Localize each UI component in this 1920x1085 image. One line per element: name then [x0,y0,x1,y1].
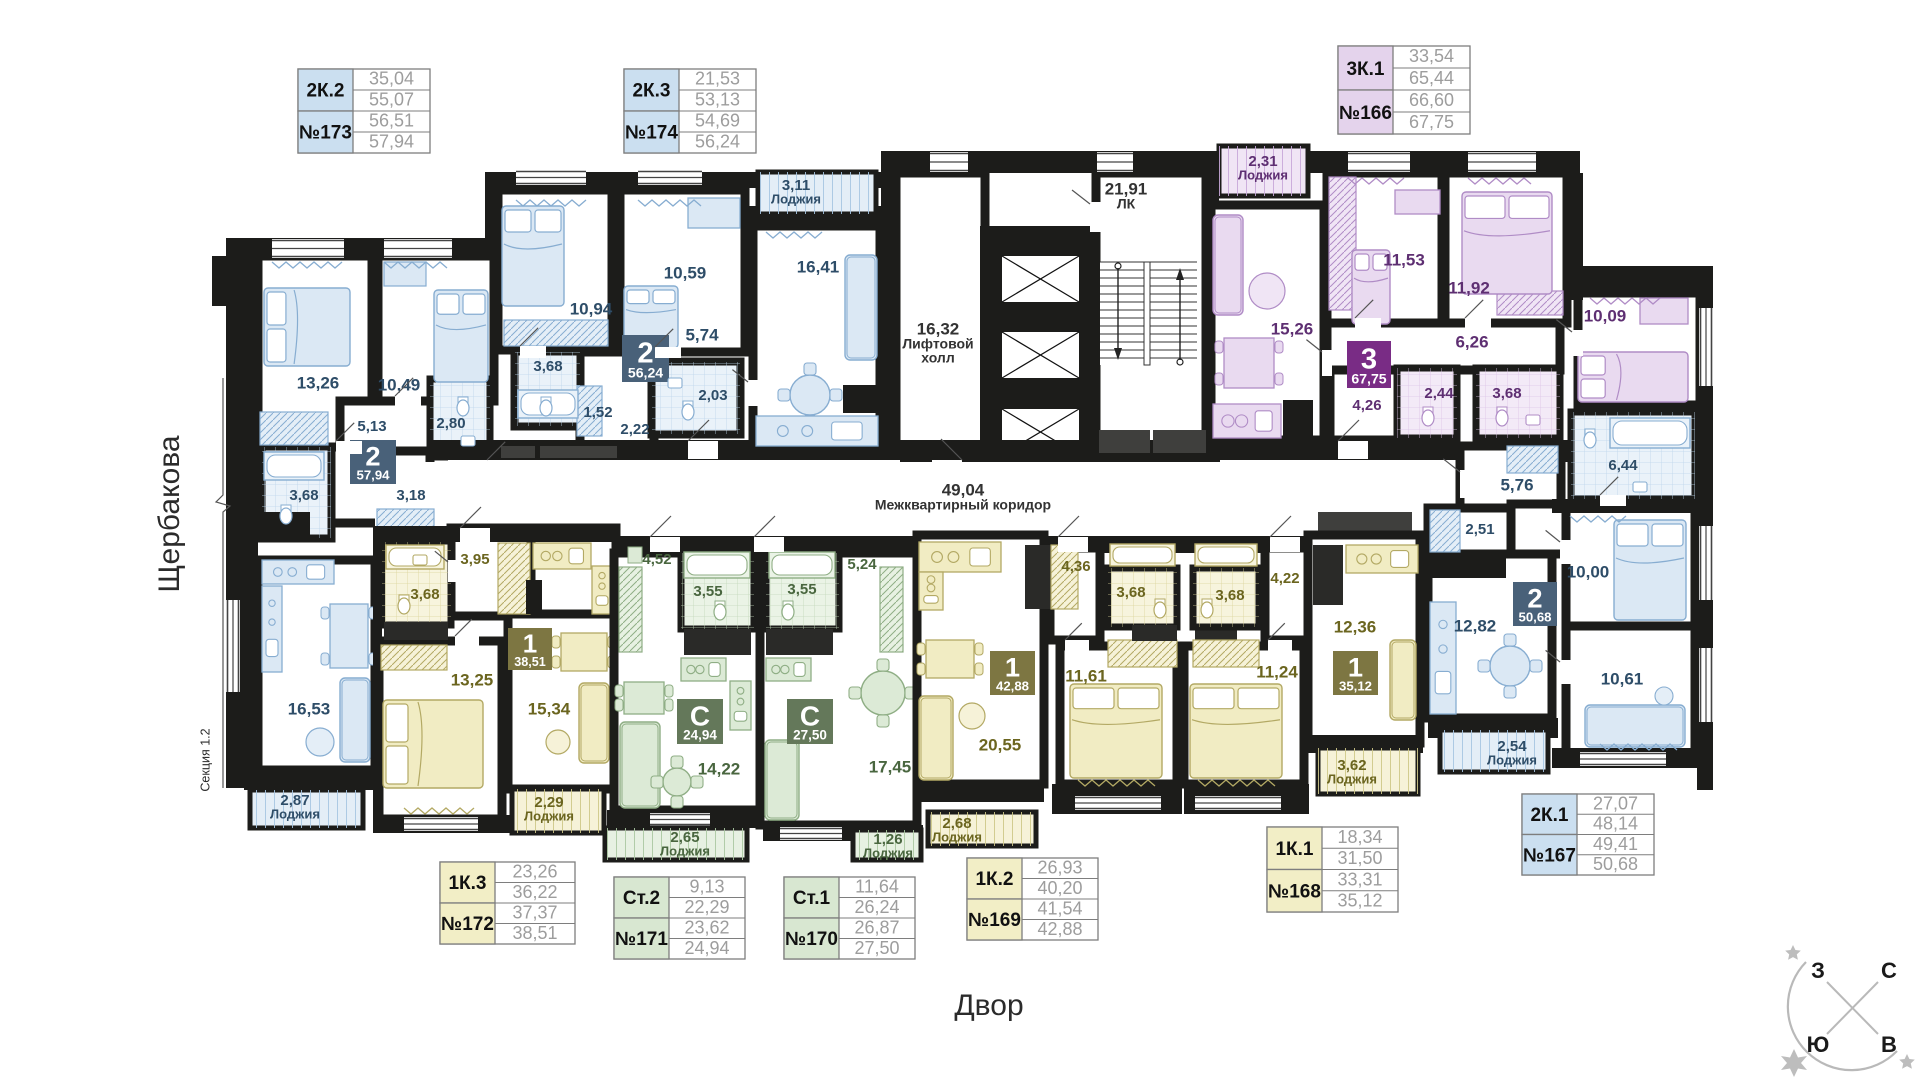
svg-text:Лоджия: Лоджия [660,843,710,858]
svg-text:Лоджия: Лоджия [1327,771,1377,786]
svg-text:3,55: 3,55 [693,583,722,600]
svg-text:40,20: 40,20 [1037,878,1082,898]
svg-text:В: В [1881,1032,1897,1057]
svg-text:38,51: 38,51 [514,655,546,669]
svg-text:48,14: 48,14 [1593,814,1638,834]
svg-text:35,04: 35,04 [369,69,414,89]
svg-text:2,44: 2,44 [1424,385,1454,402]
svg-text:17,45: 17,45 [869,757,912,776]
svg-text:Ст.2: Ст.2 [623,888,660,909]
svg-text:№169: №169 [968,910,1021,931]
svg-text:50,68: 50,68 [1593,854,1638,874]
svg-text:6,26: 6,26 [1455,332,1488,351]
svg-text:3,68: 3,68 [1116,584,1145,601]
svg-text:57,94: 57,94 [356,468,390,483]
svg-text:15,26: 15,26 [1271,319,1314,338]
svg-text:Лоджия: Лоджия [1238,167,1288,182]
svg-text:36,22: 36,22 [512,882,557,902]
svg-text:4,52: 4,52 [642,551,671,568]
svg-text:3,55: 3,55 [787,581,816,598]
svg-text:Ст.1: Ст.1 [793,888,831,909]
svg-text:№172: №172 [441,914,494,935]
svg-text:20,55: 20,55 [979,735,1022,754]
svg-text:12,36: 12,36 [1334,617,1377,636]
svg-text:42,88: 42,88 [1037,919,1082,939]
svg-text:22,29: 22,29 [684,897,729,917]
svg-text:24,94: 24,94 [684,938,729,958]
svg-text:3,68: 3,68 [410,586,439,603]
svg-text:23,62: 23,62 [684,917,729,937]
svg-text:15,34: 15,34 [528,699,571,718]
svg-text:З: З [1811,958,1825,983]
svg-text:2К.3: 2К.3 [632,81,670,102]
svg-text:Лоджия: Лоджия [270,806,320,821]
svg-text:Двор: Двор [954,989,1023,1022]
svg-text:1,52: 1,52 [583,404,612,421]
svg-text:3К.1: 3К.1 [1346,59,1384,80]
svg-text:16,53: 16,53 [288,699,331,718]
svg-text:11,92: 11,92 [1448,278,1490,297]
svg-text:10,09: 10,09 [1584,306,1627,325]
svg-text:2К.1: 2К.1 [1530,805,1568,826]
svg-text:2,51: 2,51 [1465,521,1494,538]
svg-text:50,68: 50,68 [1518,610,1551,625]
svg-text:49,41: 49,41 [1593,834,1638,854]
svg-text:9,13: 9,13 [689,876,724,896]
svg-text:2К.2: 2К.2 [306,81,344,102]
svg-text:66,60: 66,60 [1409,90,1454,110]
svg-text:10,61: 10,61 [1601,669,1644,688]
svg-text:56,51: 56,51 [369,111,414,131]
svg-text:4,26: 4,26 [1352,397,1381,414]
svg-text:13,25: 13,25 [451,670,494,689]
svg-text:24,94: 24,94 [683,727,717,742]
svg-text:38,51: 38,51 [512,923,557,943]
svg-text:№170: №170 [785,929,838,950]
svg-text:67,75: 67,75 [1409,112,1454,132]
svg-text:11,64: 11,64 [855,876,899,896]
svg-text:Межквартирный коридор: Межквартирный коридор [875,497,1051,513]
svg-text:Щербакова: Щербакова [153,435,186,592]
svg-text:№167: №167 [1523,845,1576,866]
svg-text:41,54: 41,54 [1037,898,1082,918]
svg-text:6,44: 6,44 [1608,457,1638,474]
svg-text:56,24: 56,24 [628,364,663,380]
svg-text:13,26: 13,26 [297,373,340,392]
svg-text:27,07: 27,07 [1593,793,1638,813]
svg-text:№168: №168 [1268,881,1321,902]
svg-text:1К.3: 1К.3 [448,873,486,894]
svg-text:27,50: 27,50 [854,938,899,958]
svg-text:5,13: 5,13 [357,418,386,435]
svg-text:37,37: 37,37 [512,902,557,922]
svg-text:26,87: 26,87 [854,917,899,937]
svg-text:55,07: 55,07 [369,90,414,110]
svg-text:№174: №174 [625,123,678,144]
svg-text:23,26: 23,26 [512,861,557,881]
svg-text:21,53: 21,53 [695,69,740,89]
svg-text:14,22: 14,22 [698,759,741,778]
svg-text:Лоджия: Лоджия [771,191,821,206]
svg-text:35,12: 35,12 [1337,891,1382,911]
svg-text:33,54: 33,54 [1409,46,1454,66]
svg-text:57,94: 57,94 [369,132,414,152]
svg-text:холл: холл [921,350,954,366]
svg-text:3,95: 3,95 [460,551,489,568]
svg-text:16,41: 16,41 [797,257,840,276]
svg-text:26,24: 26,24 [854,897,899,917]
svg-text:5,24: 5,24 [847,556,877,573]
svg-text:33,31: 33,31 [1337,869,1382,889]
svg-text:3,18: 3,18 [396,487,425,504]
svg-text:53,13: 53,13 [695,90,740,110]
svg-text:11,61: 11,61 [1065,666,1107,685]
svg-text:65,44: 65,44 [1409,68,1454,88]
svg-text:№171: №171 [615,929,668,950]
svg-text:42,88: 42,88 [996,679,1029,694]
svg-text:31,50: 31,50 [1337,848,1382,868]
svg-text:ЛК: ЛК [1117,196,1136,212]
svg-text:4,36: 4,36 [1061,558,1090,575]
svg-text:2,22: 2,22 [620,421,649,438]
svg-text:56,24: 56,24 [695,132,740,152]
svg-text:2,80: 2,80 [436,415,465,432]
svg-text:18,34: 18,34 [1337,827,1382,847]
svg-text:3,68: 3,68 [289,487,318,504]
svg-text:11,53: 11,53 [1383,250,1425,269]
svg-text:1К.2: 1К.2 [975,869,1013,890]
svg-text:35,12: 35,12 [1339,679,1372,694]
svg-text:67,75: 67,75 [1351,370,1386,386]
svg-text:10,00: 10,00 [1567,562,1610,581]
svg-text:3,68: 3,68 [533,358,562,375]
svg-text:27,50: 27,50 [793,727,827,742]
svg-text:Лоджия: Лоджия [524,808,574,823]
svg-text:4,22: 4,22 [1270,570,1299,587]
svg-text:Секция 1.2: Секция 1.2 [198,728,212,791]
svg-text:11,24: 11,24 [1256,662,1298,681]
svg-text:5,76: 5,76 [1500,475,1533,494]
svg-text:2,03: 2,03 [698,387,727,404]
svg-text:10,59: 10,59 [664,263,707,282]
svg-text:С: С [1881,958,1897,983]
svg-text:Ю: Ю [1807,1032,1830,1057]
svg-text:26,93: 26,93 [1037,857,1082,877]
svg-text:54,69: 54,69 [695,111,740,131]
svg-text:Лоджия: Лоджия [932,829,982,844]
svg-text:Лоджия: Лоджия [863,845,913,860]
svg-text:5,74: 5,74 [685,325,719,344]
svg-text:10,94: 10,94 [570,299,613,318]
svg-text:Лоджия: Лоджия [1487,752,1537,767]
svg-text:№166: №166 [1339,103,1392,124]
svg-text:№173: №173 [299,123,352,144]
svg-text:1К.1: 1К.1 [1275,839,1313,860]
svg-text:3,68: 3,68 [1492,385,1521,402]
svg-text:3,68: 3,68 [1215,587,1244,604]
svg-text:12,82: 12,82 [1454,616,1497,635]
